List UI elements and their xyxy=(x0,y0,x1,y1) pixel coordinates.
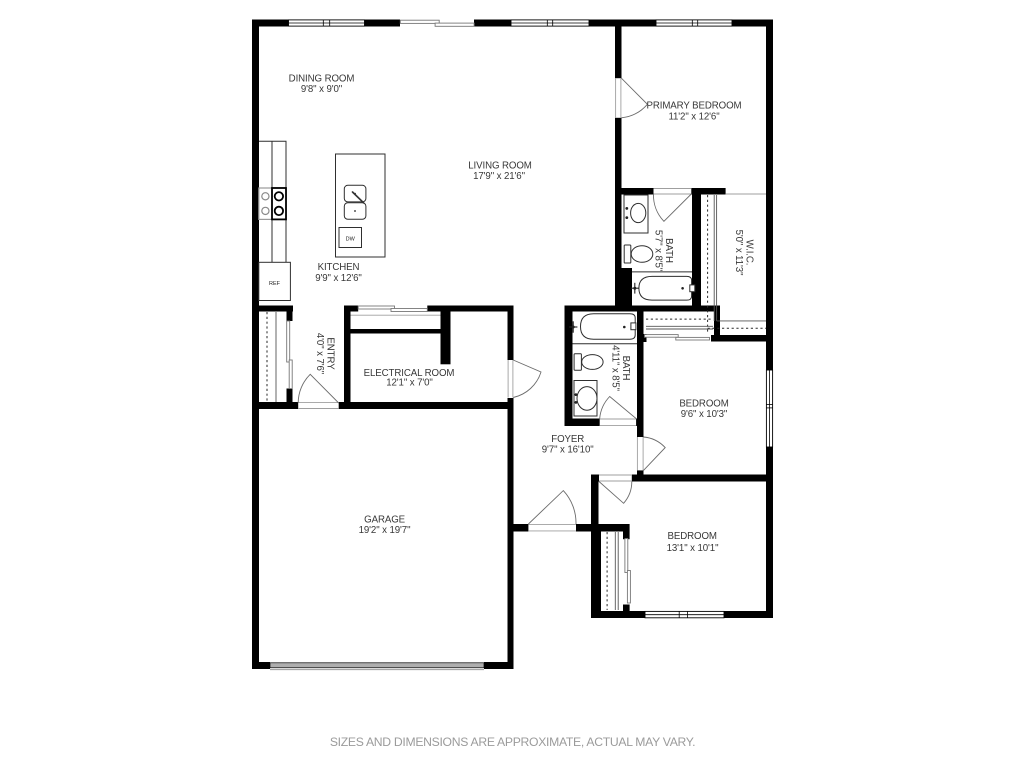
svg-text:PRIMARY BEDROOM: PRIMARY BEDROOM xyxy=(646,100,741,111)
svg-text:9'8" x 9'0": 9'8" x 9'0" xyxy=(301,84,343,95)
svg-text:13'1" x 10'1": 13'1" x 10'1" xyxy=(667,543,719,554)
svg-text:ENTRY4'0" x 7'6": ENTRY4'0" x 7'6" xyxy=(314,333,336,375)
svg-text:17'9" x 21'6": 17'9" x 21'6" xyxy=(473,171,525,182)
svg-text:LIVING ROOM: LIVING ROOM xyxy=(468,160,532,171)
svg-text:GARAGE: GARAGE xyxy=(364,515,405,526)
svg-text:DW: DW xyxy=(346,236,356,242)
svg-text:KITCHEN: KITCHEN xyxy=(318,262,360,273)
svg-text:19'2" x 19'7": 19'2" x 19'7" xyxy=(359,525,411,536)
svg-text:SIZES AND DIMENSIONS ARE APPRO: SIZES AND DIMENSIONS ARE APPROXIMATE, AC… xyxy=(330,735,695,749)
svg-text:BEDROOM: BEDROOM xyxy=(679,399,728,410)
svg-text:9'7" x 16'10": 9'7" x 16'10" xyxy=(542,445,594,456)
svg-text:DINING ROOM: DINING ROOM xyxy=(289,74,355,85)
svg-text:FOYER: FOYER xyxy=(551,434,584,445)
svg-text:BEDROOM: BEDROOM xyxy=(668,531,717,542)
svg-text:12'1" x 7'0": 12'1" x 7'0" xyxy=(386,378,433,389)
svg-text:9'9" x 12'6": 9'9" x 12'6" xyxy=(315,273,362,284)
svg-text:9'6" x 10'3": 9'6" x 10'3" xyxy=(681,409,728,420)
svg-text:REF: REF xyxy=(269,281,281,287)
svg-text:11'2" x 12'6": 11'2" x 12'6" xyxy=(668,112,720,123)
